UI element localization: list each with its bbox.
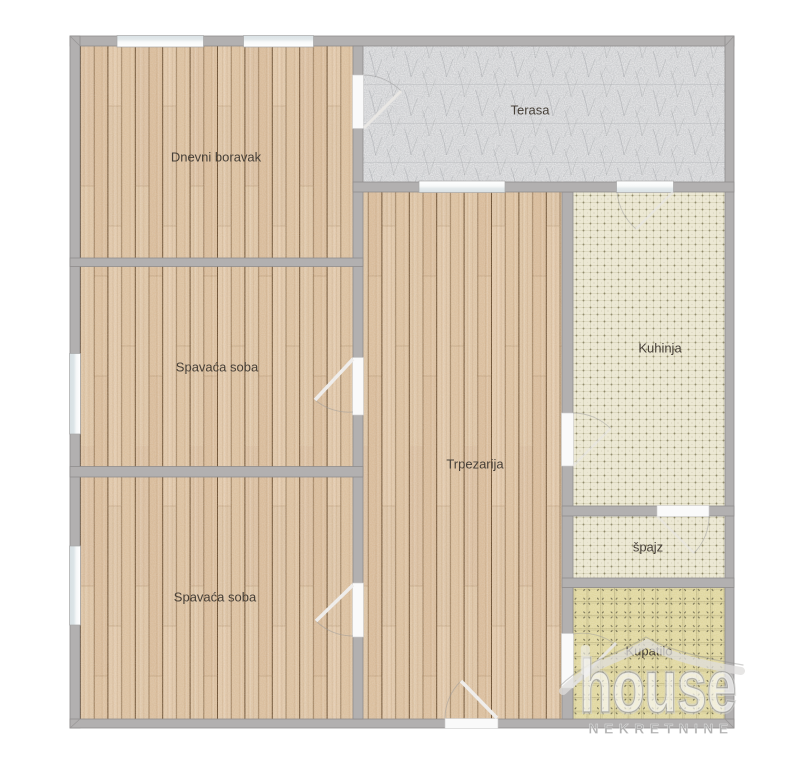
svg-text:Spavaća soba: Spavaća soba xyxy=(176,360,259,375)
svg-text:Spavaća soba: Spavaća soba xyxy=(174,590,257,605)
svg-text:house: house xyxy=(580,645,737,728)
svg-text:Kuhinja: Kuhinja xyxy=(638,341,682,356)
svg-text:Dnevni boravak: Dnevni boravak xyxy=(171,150,262,165)
svg-text:Trpezarija: Trpezarija xyxy=(446,457,504,472)
svg-text:špajz: špajz xyxy=(633,540,663,555)
svg-text:NEKRETNINE: NEKRETNINE xyxy=(588,721,733,737)
svg-text:Terasa: Terasa xyxy=(510,103,550,118)
